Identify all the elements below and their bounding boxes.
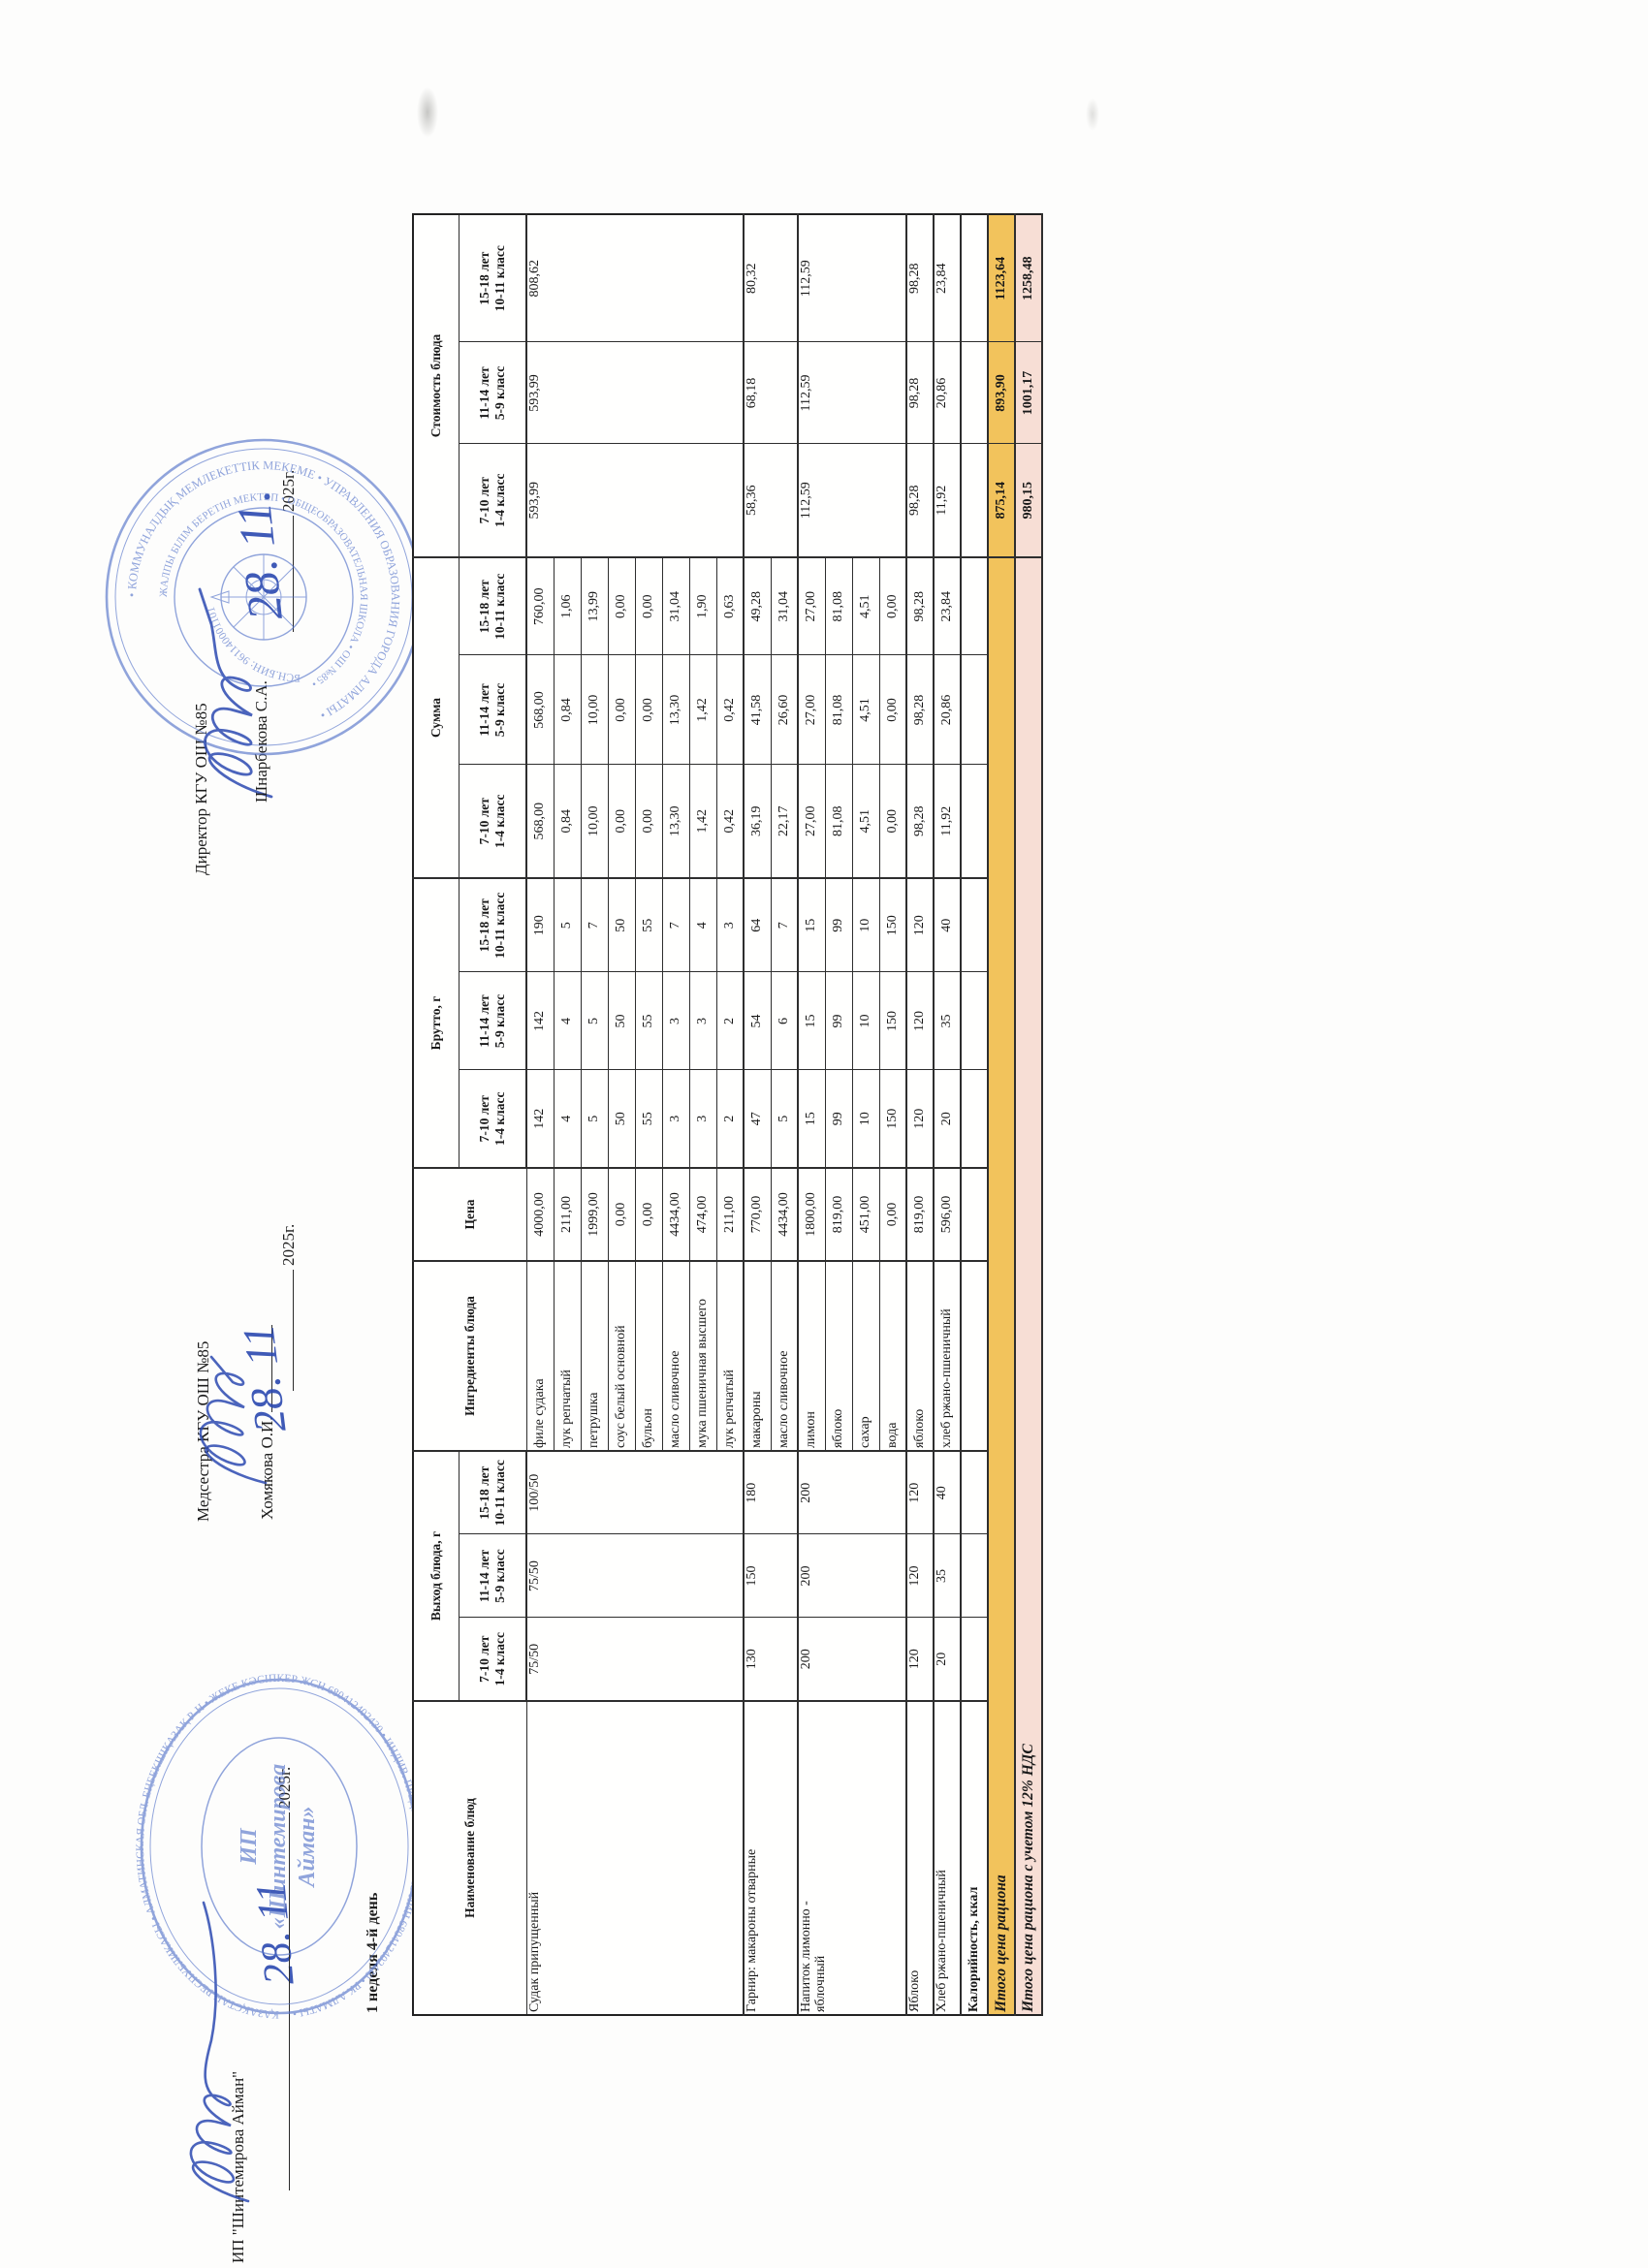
brutto-value-cell: 15 (798, 1070, 825, 1168)
summa-value-cell: 98,28 (906, 655, 934, 765)
summa-value-cell: 568,00 (526, 765, 554, 878)
summa-value-cell: 81,08 (825, 557, 852, 655)
total-value-cell: 1123,64 (988, 214, 1015, 342)
summa-value-cell: 98,28 (906, 765, 934, 878)
vyhod-value-cell: 75/50 (526, 1618, 744, 1701)
calories-empty-cell (961, 878, 988, 972)
cost-value-cell: 808,62 (526, 214, 744, 342)
total-value-cell: 1258,48 (1015, 214, 1042, 342)
dish-name-cell: Судак припущенный (526, 1701, 744, 2015)
vyhod-age-2: 11-14 лет5-9 класс (460, 1534, 527, 1618)
cost-value-cell: 20,86 (934, 342, 961, 444)
summa-value-cell: 4,51 (852, 557, 879, 655)
calories-empty-cell (961, 1618, 988, 1701)
price-value-cell: 211,00 (554, 1168, 581, 1261)
calories-label-cell: Калорийность, ккал (961, 1701, 988, 2015)
ip-stamp-center-line2: «Шинтемирова (266, 1764, 291, 1929)
vyhod-value-cell: 120 (906, 1534, 934, 1618)
brutto-value-cell: 55 (635, 1070, 662, 1168)
summa-value-cell: 760,00 (526, 557, 554, 655)
cost-value-cell: 58,36 (744, 444, 798, 557)
summa-value-cell: 0,84 (554, 655, 581, 765)
ip-stamp-center-line3: Айман» (295, 1806, 320, 1888)
col-header-brutto: Брутто, г (413, 878, 460, 1168)
calories-empty-cell (961, 444, 988, 557)
brutto-value-cell: 40 (934, 878, 961, 972)
vyhod-value-cell: 100/50 (526, 1451, 744, 1534)
cost-value-cell: 98,28 (906, 342, 934, 444)
cost-value-cell: 98,28 (906, 214, 934, 342)
ingredient-name-cell: вода (879, 1261, 906, 1451)
ingredient-name-cell: масло сливочное (662, 1261, 689, 1451)
col-header-vyhod: Выход блюда, г (413, 1451, 460, 1701)
summa-value-cell: 1,90 (689, 557, 716, 655)
dish-name-cell: Хлеб ржано-пшеничный (934, 1701, 961, 2015)
summa-value-cell: 10,00 (581, 655, 608, 765)
summa-value-cell: 568,00 (526, 655, 554, 765)
summa-age-1: 7-10 лет1-4 класс (460, 765, 527, 878)
summa-value-cell: 20,86 (934, 655, 961, 765)
summa-value-cell: 0,00 (608, 557, 635, 655)
brutto-value-cell: 55 (635, 972, 662, 1070)
cost-value-cell: 68,18 (744, 342, 798, 444)
price-value-cell: 596,00 (934, 1168, 961, 1261)
svg-text:БСН.БИН: 961140001101: БСН.БИН: 961140001101 (206, 605, 301, 683)
ingredient-name-cell: яблоко (906, 1261, 934, 1451)
brutto-value-cell: 120 (906, 1070, 934, 1168)
calories-empty-cell (961, 342, 988, 444)
calories-empty-cell (961, 1261, 988, 1451)
price-value-cell: 0,00 (635, 1168, 662, 1261)
brutto-value-cell: 4 (554, 1070, 581, 1168)
price-value-cell: 819,00 (906, 1168, 934, 1261)
brutto-value-cell: 7 (581, 878, 608, 972)
dish-row: Напиток лимонно -яблочный200200200лимон1… (798, 214, 825, 2015)
brutto-age-1: 7-10 лет1-4 класс (460, 1070, 527, 1168)
vyhod-value-cell: 35 (934, 1534, 961, 1618)
brutto-value-cell: 3 (662, 972, 689, 1070)
dish-name-cell: Яблоко (906, 1701, 934, 2015)
summa-value-cell: 0,42 (716, 765, 744, 878)
summa-value-cell: 4,51 (852, 765, 879, 878)
col-header-summa: Сумма (413, 557, 460, 878)
dish-row: Яблоко120120120яблоко819,0012012012098,2… (906, 214, 934, 2015)
vyhod-value-cell: 200 (798, 1451, 906, 1534)
vyhod-value-cell: 200 (798, 1618, 906, 1701)
brutto-value-cell: 5 (581, 972, 608, 1070)
calories-empty-cell (961, 1451, 988, 1534)
col-header-dish-name: Наименование блюд (413, 1701, 526, 2015)
ingredient-name-cell: лук репчатый (554, 1261, 581, 1451)
calories-empty-cell (961, 655, 988, 765)
dish-row: Судак припущенный75/5075/50100/50филе су… (526, 214, 554, 2015)
vyhod-value-cell: 120 (906, 1618, 934, 1701)
summa-value-cell: 1,42 (689, 765, 716, 878)
summa-value-cell: 81,08 (825, 655, 852, 765)
brutto-age-2: 11-14 лет5-9 класс (460, 972, 527, 1070)
ingredient-name-cell: хлеб ржано-пшеничный (934, 1261, 961, 1451)
brutto-value-cell: 4 (689, 878, 716, 972)
total-value-cell: 980,15 (1015, 444, 1042, 557)
brutto-value-cell: 64 (744, 878, 771, 972)
summa-value-cell: 0,00 (608, 765, 635, 878)
summa-value-cell: 23,84 (934, 557, 961, 655)
ingredient-name-cell: сахар (852, 1261, 879, 1451)
calories-empty-cell (961, 1168, 988, 1261)
dish-row: Гарнир: макароны отварные130150180макаро… (744, 214, 771, 2015)
col-header-cost: Стоимость блюда (413, 214, 460, 557)
cost-value-cell: 112,59 (798, 342, 906, 444)
calories-empty-cell (961, 1534, 988, 1618)
price-value-cell: 1999,00 (581, 1168, 608, 1261)
brutto-value-cell: 2 (716, 972, 744, 1070)
brutto-age-3: 15-18 лет10-11 класс (460, 878, 527, 972)
scanned-page: ИП "Шинтемирова Айман" 28. 11 2025г. 1 н… (0, 0, 1648, 2268)
summa-value-cell: 27,00 (798, 765, 825, 878)
summa-value-cell: 4,51 (852, 655, 879, 765)
cost-value-cell: 80,32 (744, 214, 798, 342)
price-value-cell: 451,00 (852, 1168, 879, 1261)
ingredient-name-cell: бульон (635, 1261, 662, 1451)
price-value-cell: 0,00 (879, 1168, 906, 1261)
brutto-value-cell: 10 (852, 1070, 879, 1168)
total-value-cell: 875,14 (988, 444, 1015, 557)
pencil-smudge (417, 87, 438, 138)
col-header-ingredients: Ингредиенты блюда (413, 1261, 526, 1451)
cost-value-cell: 593,99 (526, 342, 744, 444)
summa-value-cell: 31,04 (662, 557, 689, 655)
brutto-value-cell: 3 (716, 878, 744, 972)
cost-age-1: 7-10 лет1-4 класс (460, 444, 527, 557)
brutto-value-cell: 150 (879, 1070, 906, 1168)
summa-value-cell: 81,08 (825, 765, 852, 878)
dish-name-cell: Гарнир: макароны отварные (744, 1701, 798, 2015)
brutto-value-cell: 3 (689, 972, 716, 1070)
summa-value-cell: 0,00 (635, 557, 662, 655)
brutto-value-cell: 99 (825, 972, 852, 1070)
summa-age-3: 15-18 лет10-11 класс (460, 557, 527, 655)
summa-value-cell: 27,00 (798, 557, 825, 655)
summa-value-cell: 13,30 (662, 765, 689, 878)
nurse-date-underline (279, 1270, 294, 1391)
brutto-value-cell: 7 (662, 878, 689, 972)
brutto-value-cell: 120 (906, 972, 934, 1070)
brutto-value-cell: 150 (879, 972, 906, 1070)
brutto-value-cell: 2 (716, 1070, 744, 1168)
price-value-cell: 4434,00 (771, 1168, 798, 1261)
brutto-value-cell: 10 (852, 972, 879, 1070)
cost-value-cell: 11,92 (934, 444, 961, 557)
menu-cost-table: Наименование блюд Выход блюда, г Ингреди… (412, 213, 1043, 2016)
ip-stamp-center-line1: ИП (237, 1827, 262, 1866)
calories-row: Калорийность, ккал (961, 214, 988, 2015)
summa-value-cell: 49,28 (744, 557, 771, 655)
total-value-cell: 1001,17 (1015, 342, 1042, 444)
price-value-cell: 474,00 (689, 1168, 716, 1261)
price-value-cell: 0,00 (608, 1168, 635, 1261)
total-value-cell: 893,90 (988, 342, 1015, 444)
summa-value-cell: 13,99 (581, 557, 608, 655)
vyhod-value-cell: 20 (934, 1618, 961, 1701)
price-value-cell: 770,00 (744, 1168, 771, 1261)
calories-empty-cell (961, 557, 988, 655)
total-label-cell: Итого цена рациона с учетом 12% НДС (1015, 557, 1042, 2015)
cost-value-cell: 112,59 (798, 214, 906, 342)
ingredient-name-cell: макароны (744, 1261, 771, 1451)
price-value-cell: 211,00 (716, 1168, 744, 1261)
dish-name-cell: Напиток лимонно -яблочный (798, 1701, 906, 2015)
brutto-value-cell: 99 (825, 1070, 852, 1168)
vyhod-age-1: 7-10 лет1-4 класс (460, 1618, 527, 1701)
summa-value-cell: 0,00 (879, 765, 906, 878)
brutto-value-cell: 47 (744, 1070, 771, 1168)
summa-age-2: 11-14 лет5-9 класс (460, 655, 527, 765)
menu-table-body: Судак припущенный75/5075/50100/50филе су… (526, 214, 1042, 2015)
price-value-cell: 4434,00 (662, 1168, 689, 1261)
calories-empty-cell (961, 972, 988, 1070)
vyhod-value-cell: 40 (934, 1451, 961, 1534)
brutto-value-cell: 142 (526, 1070, 554, 1168)
ingredient-name-cell: мука пшеничная высшего (689, 1261, 716, 1451)
summa-value-cell: 10,00 (581, 765, 608, 878)
brutto-value-cell: 5 (771, 1070, 798, 1168)
col-header-price: Цена (413, 1168, 526, 1261)
summa-value-cell: 0,00 (635, 655, 662, 765)
brutto-value-cell: 50 (608, 878, 635, 972)
brutto-value-cell: 35 (934, 972, 961, 1070)
document-sheet: ИП "Шинтемирова Айман" 28. 11 2025г. 1 н… (0, 0, 1648, 2268)
summa-value-cell: 98,28 (906, 557, 934, 655)
summa-value-cell: 13,30 (662, 655, 689, 765)
summa-value-cell: 26,60 (771, 655, 798, 765)
cost-value-cell: 23,84 (934, 214, 961, 342)
brutto-value-cell: 15 (798, 878, 825, 972)
price-value-cell: 819,00 (825, 1168, 852, 1261)
brutto-value-cell: 54 (744, 972, 771, 1070)
ingredient-name-cell: лимон (798, 1261, 825, 1451)
summa-value-cell: 0,42 (716, 655, 744, 765)
calories-empty-cell (961, 214, 988, 342)
school-stamp-bin-text: БСН.БИН: 961140001101 (206, 605, 301, 683)
calories-empty-cell (961, 1070, 988, 1168)
cost-age-3: 15-18 лет10-11 класс (460, 214, 527, 342)
summa-value-cell: 0,00 (879, 655, 906, 765)
vyhod-age-3: 15-18 лет10-11 класс (460, 1451, 527, 1534)
brutto-value-cell: 6 (771, 972, 798, 1070)
ip-oval-stamp: ҚАЗАҚСТАН РЕСПУБЛИКАСЫ • АЛМАТИНСКАЯ ОБЛ… (128, 1665, 430, 2028)
vyhod-value-cell: 180 (744, 1451, 798, 1534)
dish-row: Хлеб ржано-пшеничный203540хлеб ржано-пше… (934, 214, 961, 2015)
vyhod-value-cell: 120 (906, 1451, 934, 1534)
vyhod-value-cell: 200 (798, 1534, 906, 1618)
ingredient-name-cell: петрушка (581, 1261, 608, 1451)
brutto-value-cell: 150 (879, 878, 906, 972)
summa-value-cell: 1,42 (689, 655, 716, 765)
brutto-value-cell: 4 (554, 972, 581, 1070)
total-label-cell: Итого цена рациона (988, 557, 1015, 2015)
brutto-value-cell: 50 (608, 972, 635, 1070)
brutto-value-cell: 99 (825, 878, 852, 972)
brutto-value-cell: 3 (662, 1070, 689, 1168)
summa-value-cell: 0,63 (716, 557, 744, 655)
brutto-value-cell: 55 (635, 878, 662, 972)
summa-value-cell: 31,04 (771, 557, 798, 655)
brutto-value-cell: 5 (581, 1070, 608, 1168)
brutto-value-cell: 15 (798, 972, 825, 1070)
summa-value-cell: 11,92 (934, 765, 961, 878)
school-round-stamp: • КОММУНАЛДЫҚ МЕМЛЕКЕТТІК МЕКЕМЕ • УПРАВ… (97, 430, 430, 764)
summa-value-cell: 22,17 (771, 765, 798, 878)
total-with-vat-row: Итого цена рациона с учетом 12% НДС980,1… (1015, 214, 1042, 2015)
vyhod-value-cell: 130 (744, 1618, 798, 1701)
summa-value-cell: 41,58 (744, 655, 771, 765)
brutto-value-cell: 50 (608, 1070, 635, 1168)
summa-value-cell: 36,19 (744, 765, 771, 878)
ingredient-name-cell: лук репчатый (716, 1261, 744, 1451)
cost-value-cell: 593,99 (526, 444, 744, 557)
brutto-value-cell: 3 (689, 1070, 716, 1168)
price-value-cell: 4000,00 (526, 1168, 554, 1261)
cost-value-cell: 98,28 (906, 444, 934, 557)
ingredient-name-cell: соус белый основной (608, 1261, 635, 1451)
brutto-value-cell: 142 (526, 972, 554, 1070)
ingredient-name-cell: масло сливочное (771, 1261, 798, 1451)
brutto-value-cell: 20 (934, 1070, 961, 1168)
pencil-smudge-small (1086, 98, 1099, 131)
summa-value-cell: 1,06 (554, 557, 581, 655)
vyhod-value-cell: 75/50 (526, 1534, 744, 1618)
summa-value-cell: 27,00 (798, 655, 825, 765)
brutto-value-cell: 190 (526, 878, 554, 972)
cost-value-cell: 112,59 (798, 444, 906, 557)
brutto-value-cell: 7 (771, 878, 798, 972)
nurse-date-line: 2025г. (279, 1224, 299, 1391)
brutto-value-cell: 120 (906, 878, 934, 972)
ingredient-name-cell: яблоко (825, 1261, 852, 1451)
price-value-cell: 1800,00 (798, 1168, 825, 1261)
calories-empty-cell (961, 765, 988, 878)
brutto-value-cell: 5 (554, 878, 581, 972)
brutto-value-cell: 10 (852, 878, 879, 972)
ingredient-name-cell: филе судака (526, 1261, 554, 1451)
summa-value-cell: 0,84 (554, 765, 581, 878)
summa-value-cell: 0,00 (608, 655, 635, 765)
vyhod-value-cell: 150 (744, 1534, 798, 1618)
total-row: Итого цена рациона875,14893,901123,64 (988, 214, 1015, 2015)
nurse-year-label: 2025г. (279, 1224, 298, 1266)
table-group-header-row: Наименование блюд Выход блюда, г Ингреди… (413, 214, 460, 2015)
summa-value-cell: 0,00 (879, 557, 906, 655)
summa-value-cell: 0,00 (635, 765, 662, 878)
cost-age-2: 11-14 лет5-9 класс (460, 342, 527, 444)
